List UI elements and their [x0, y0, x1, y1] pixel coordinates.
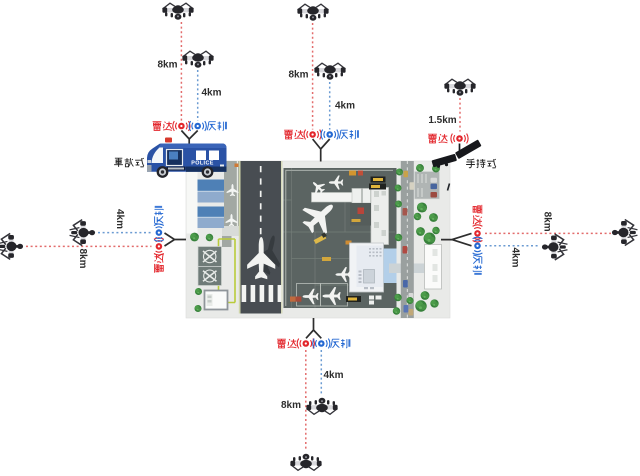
svg-text:4km: 4km — [201, 88, 221, 99]
svg-text:8km: 8km — [77, 248, 88, 268]
svg-text:4km: 4km — [323, 370, 343, 381]
svg-text:4km: 4km — [114, 209, 125, 229]
svg-text:8km: 8km — [541, 212, 552, 232]
svg-text:8km: 8km — [288, 70, 308, 81]
svg-text:POLICE: POLICE — [191, 161, 213, 167]
svg-text:1.5km: 1.5km — [428, 115, 456, 126]
svg-text:4km: 4km — [335, 101, 355, 112]
svg-text:8km: 8km — [157, 60, 177, 71]
svg-text:4km: 4km — [509, 247, 520, 267]
svg-text:8km: 8km — [281, 400, 301, 411]
